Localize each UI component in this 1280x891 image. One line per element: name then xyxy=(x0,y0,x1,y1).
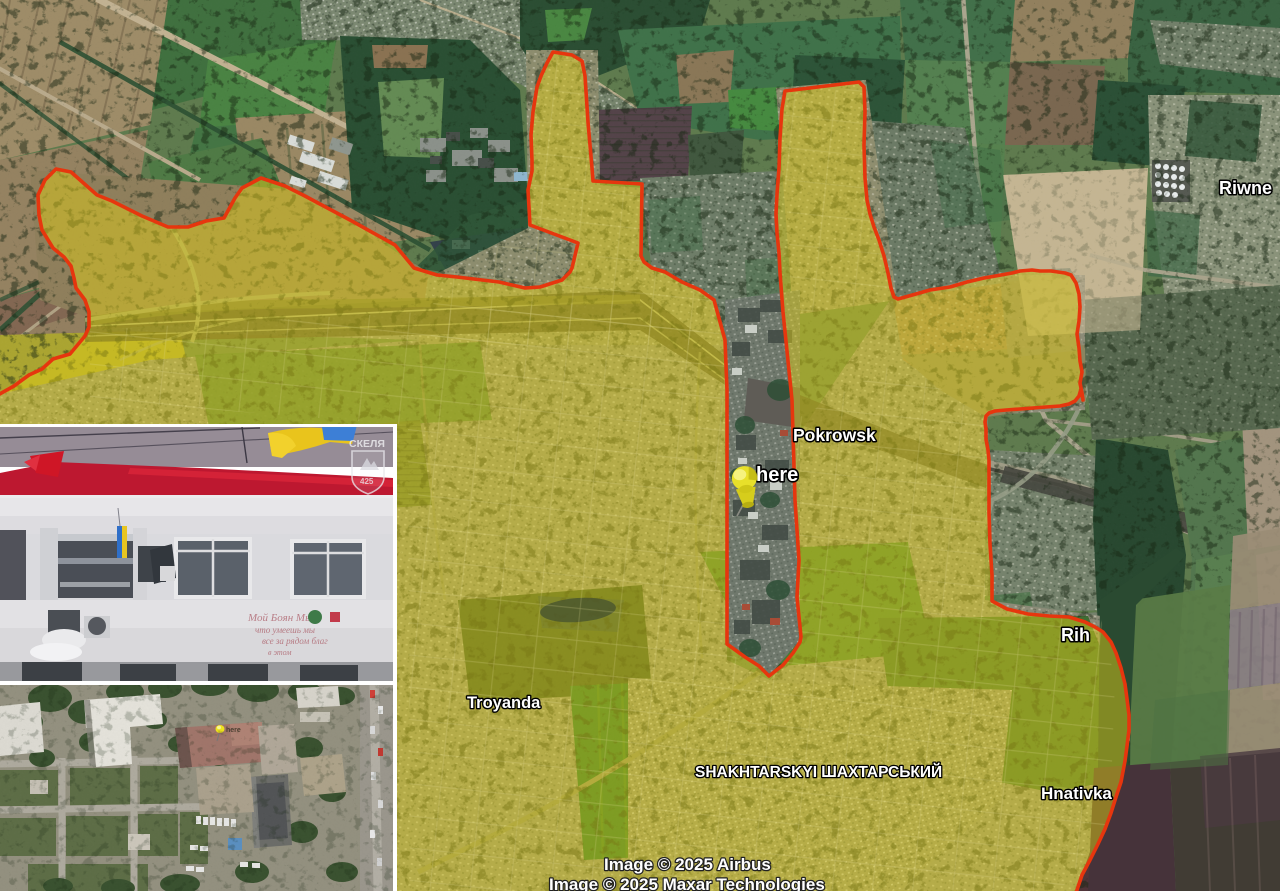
svg-text:Image © 2025 Airbus: Image © 2025 Airbus xyxy=(604,855,771,874)
svg-text:СКЕЛЯ: СКЕЛЯ xyxy=(349,438,385,450)
svg-text:в этом: в этом xyxy=(268,648,291,657)
svg-text:SHAKHTARSKYI ШАХТАРСЬКИЙ: SHAKHTARSKYI ШАХТАРСЬКИЙ xyxy=(695,763,942,781)
svg-text:Hnativka: Hnativka xyxy=(1041,784,1112,803)
svg-text:Riwne: Riwne xyxy=(1219,178,1272,198)
svg-text:Rih: Rih xyxy=(1061,625,1090,645)
svg-text:here: here xyxy=(756,464,798,486)
svg-text:Image © 2025 Maxar Technologie: Image © 2025 Maxar Technologies xyxy=(549,875,825,891)
svg-text:все за рядом благ: все за рядом благ xyxy=(262,636,328,646)
svg-text:Мой Боян Мы: Мой Боян Мы xyxy=(247,612,313,624)
svg-text:425: 425 xyxy=(360,477,374,486)
svg-text:Troyanda: Troyanda xyxy=(467,694,541,712)
svg-text:что умеешь мы: что умеешь мы xyxy=(255,625,315,635)
svg-text:Pokrowsk: Pokrowsk xyxy=(793,425,876,445)
